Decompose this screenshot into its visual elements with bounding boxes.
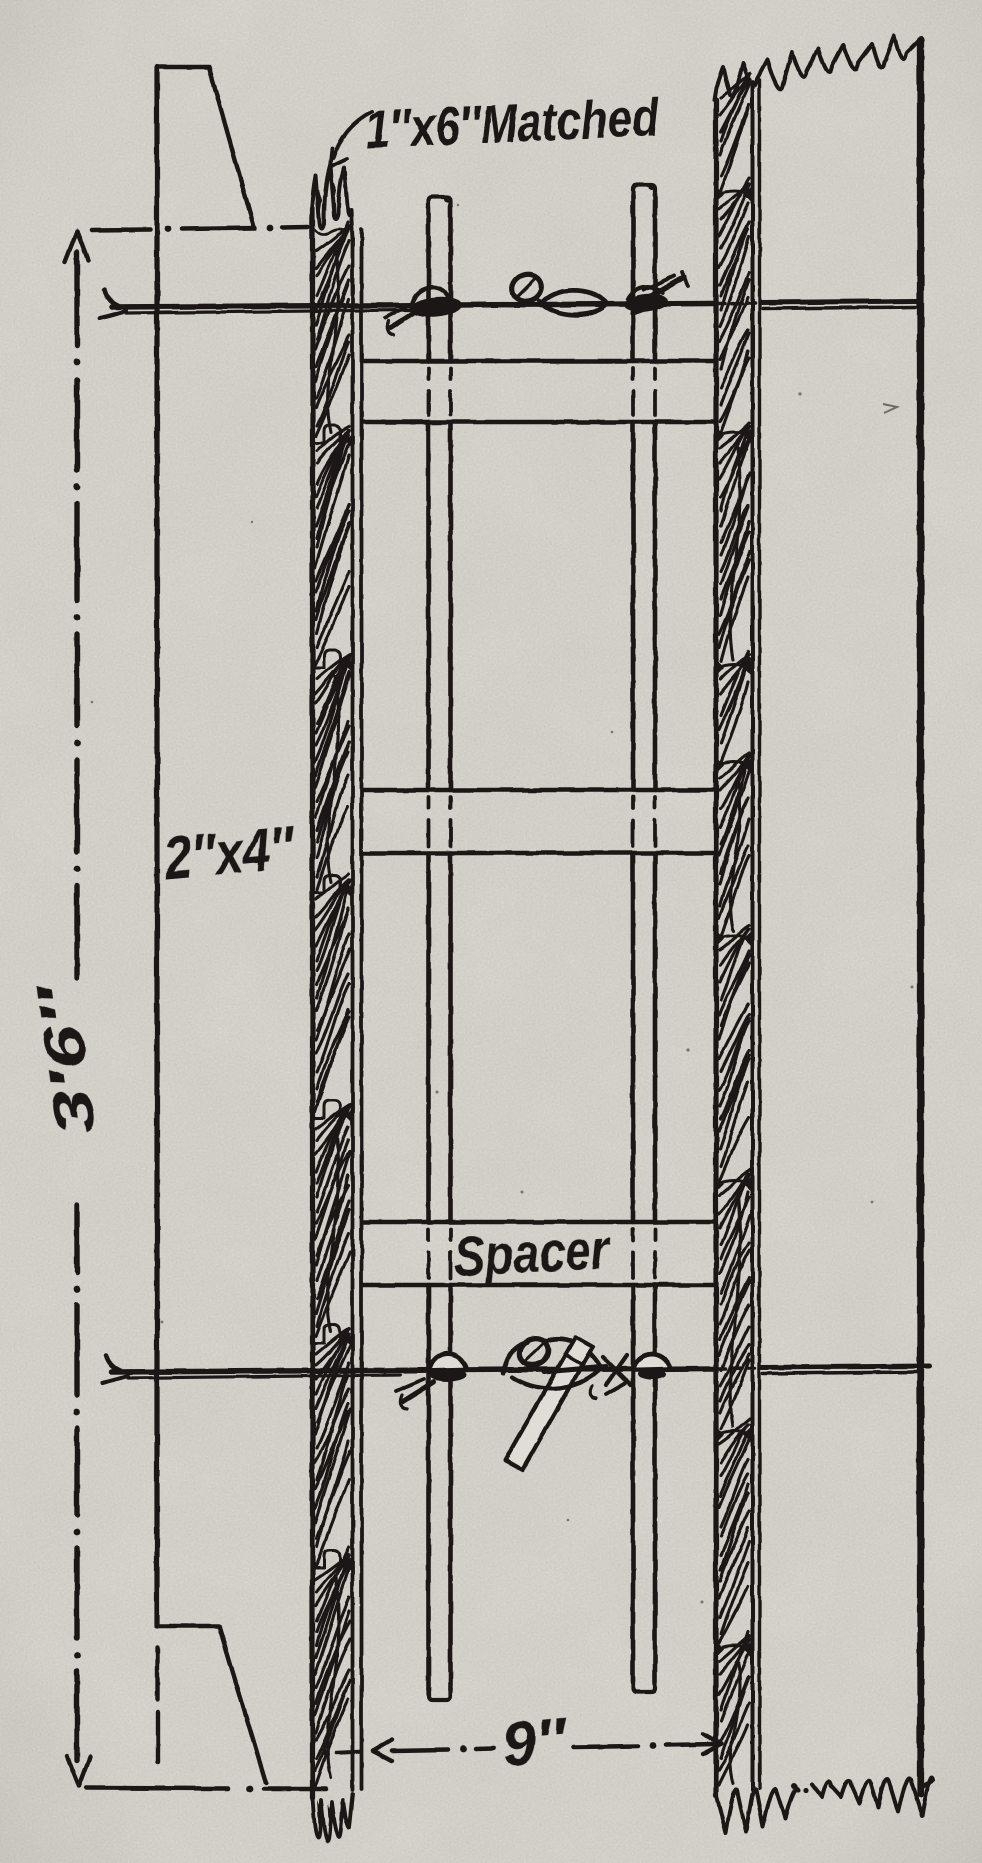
svg-text:1″x6″Matched: 1″x6″Matched [364,87,661,160]
svg-text:Spacer: Spacer [452,1217,613,1288]
svg-text:9″: 9″ [499,1705,571,1780]
svg-text:2″x4″: 2″x4″ [160,814,298,892]
